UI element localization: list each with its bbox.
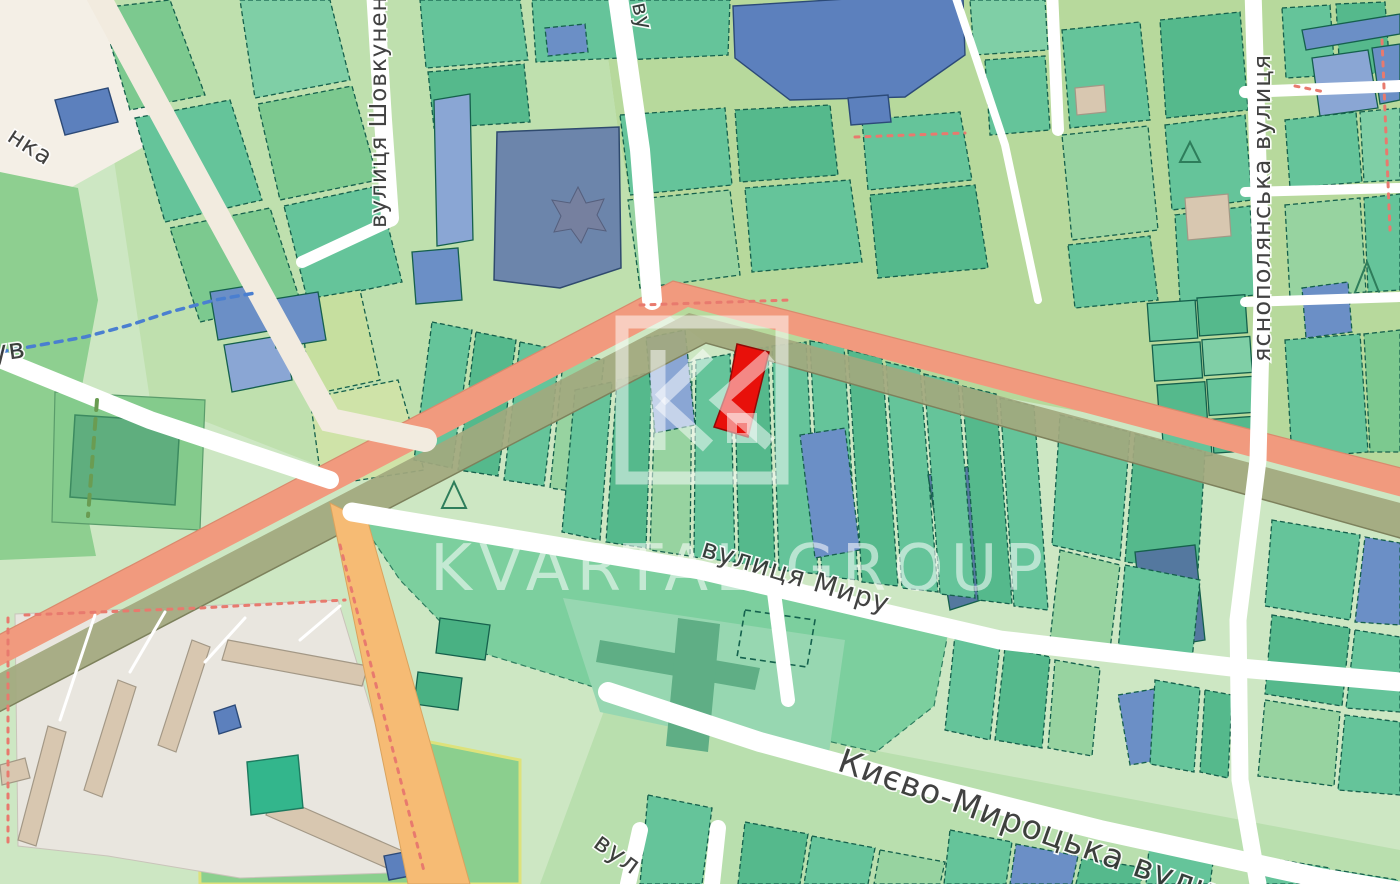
street-label-yasnopolyanska: яснополянська вулиця [1248,54,1276,362]
parcel-layer-right-edge [1282,2,1400,458]
map-canvas[interactable]: KVARTAL GROUP Києво-Мироцька вулиця вули… [0,0,1400,884]
map-viewport[interactable]: KVARTAL GROUP Києво-Мироцька вулиця вули… [0,0,1400,884]
street-label-partial-uv: ув [0,331,28,369]
street-label-shovkunenka: вулиця Шовкуненка [366,0,392,228]
